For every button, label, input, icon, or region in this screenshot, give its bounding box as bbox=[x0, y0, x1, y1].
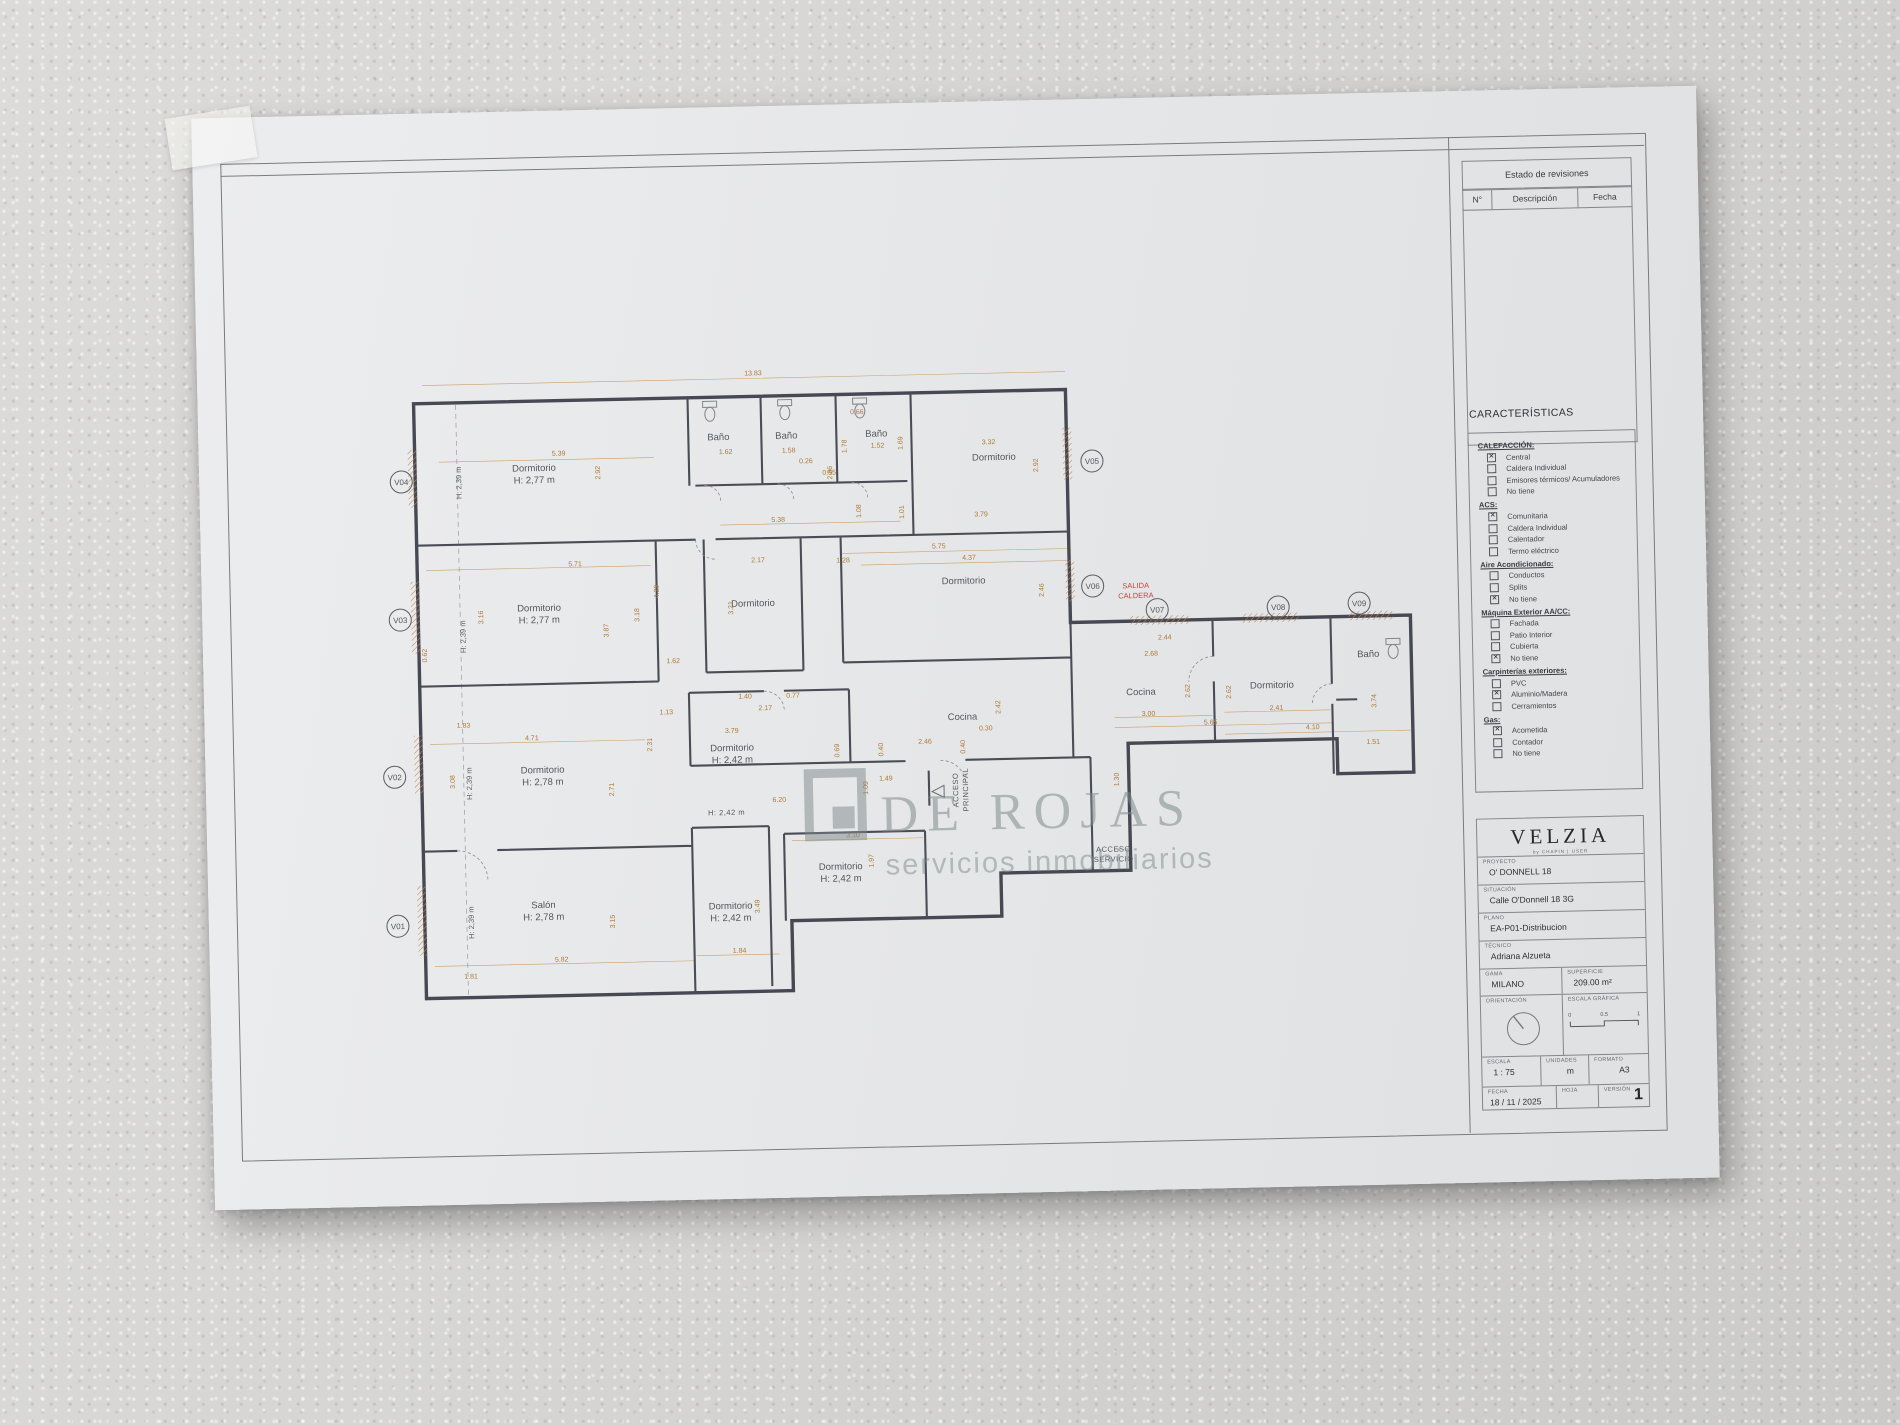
escala-value: 1 : 75 bbox=[1493, 1067, 1540, 1078]
dimension-label: 1.62 bbox=[666, 658, 680, 665]
checklist-item-label: Conductos bbox=[1508, 570, 1544, 580]
escala-grafica-label: ESCALA GRÁFICA bbox=[1568, 995, 1647, 1003]
checklist-item-label: Cubierta bbox=[1510, 642, 1539, 652]
dimension-label: 5.38 bbox=[771, 517, 785, 524]
room-label: Dormitorio bbox=[710, 742, 754, 754]
dimension-label: 1.62 bbox=[719, 449, 733, 456]
checklist-item: ✕Aluminio/Madera bbox=[1492, 687, 1640, 699]
room-height-label: H: 2,78 m bbox=[523, 912, 564, 924]
unchecked-checkbox-icon bbox=[1493, 750, 1502, 759]
dimension-label: 1.84 bbox=[733, 948, 747, 955]
checklist-item: PVC bbox=[1492, 676, 1640, 688]
checklist-item: No tiene bbox=[1493, 747, 1641, 759]
checklist-group-label: Máquina Exterior AA/CC: bbox=[1481, 605, 1638, 617]
window-marker-label: V09 bbox=[1352, 599, 1367, 608]
revision-col-num: N° bbox=[1463, 189, 1492, 210]
unidades-value: m bbox=[1552, 1066, 1588, 1077]
unchecked-checkbox-icon bbox=[1489, 547, 1498, 556]
dimension-label: 3.08 bbox=[450, 775, 457, 789]
dimension-label: 1.40 bbox=[738, 693, 752, 700]
dimension-label: 0.26 bbox=[799, 458, 813, 465]
dimension-label: 3.74 bbox=[1371, 694, 1378, 708]
room-height-label: H: 2,77 m bbox=[519, 615, 560, 627]
escala-row: ESCALA 1 : 75 UNIDADES m FORMATO A3 bbox=[1482, 1054, 1649, 1087]
escala-label: ESCALA bbox=[1487, 1059, 1540, 1066]
dimension-label: 4.71 bbox=[525, 735, 539, 742]
dimension-label: 5.71 bbox=[568, 561, 582, 568]
checklist-item: Emisores térmicos/ Acumuladores bbox=[1487, 473, 1635, 485]
dimension-label: 0.30 bbox=[979, 725, 993, 732]
gama-superficie-row: GAMA MILANO SUPERFICIE 209.00 m² bbox=[1480, 966, 1647, 997]
dimension-label: 4.29 bbox=[654, 585, 661, 599]
caracteristicas-checklist: CALEFACCIÓN:✕CentralCaldera IndividualEm… bbox=[1467, 429, 1643, 793]
dimension-label: 2.71 bbox=[609, 783, 616, 797]
dimension-label: 6.20 bbox=[772, 797, 786, 804]
room-label: Dormitorio bbox=[819, 861, 863, 873]
unchecked-checkbox-icon bbox=[1491, 631, 1500, 640]
dimension-label: 3.32 bbox=[982, 439, 996, 446]
title-block-field: TÉCNICOAdriana Alzueta bbox=[1480, 938, 1647, 970]
checklist-item-label: Emisores térmicos/ Acumuladores bbox=[1506, 473, 1620, 484]
dimension-label: 3.49 bbox=[754, 899, 761, 913]
window-height-label: H: 2,39 m bbox=[464, 767, 474, 800]
dimension-label: 1.13 bbox=[659, 709, 673, 716]
dimension-label: 1.30 bbox=[1114, 773, 1121, 787]
window-marker-label: V01 bbox=[391, 922, 406, 931]
checklist-item-label: Caldera Individual bbox=[1506, 463, 1566, 473]
window-height-label: H: 2,39 m bbox=[454, 466, 464, 499]
field-value: Adriana Alzueta bbox=[1491, 948, 1646, 961]
superficie-label: SUPERFICIE bbox=[1567, 968, 1646, 976]
dimension-label: 2.46 bbox=[1039, 583, 1046, 597]
room-label: Cocina bbox=[948, 712, 979, 724]
dimension-label: 4.37 bbox=[962, 555, 976, 562]
fecha-value: 18 / 11 / 2025 bbox=[1490, 1096, 1556, 1107]
checklist-item-label: Central bbox=[1506, 452, 1530, 462]
title-block-field: PROYECTOO' DONNELL 18 bbox=[1478, 854, 1645, 886]
dimension-label: 2.46 bbox=[918, 739, 932, 746]
unchecked-checkbox-icon bbox=[1492, 679, 1501, 688]
orientacion-row: ORIENTACIÓN ESCALA GRÁFICA 00.51 bbox=[1481, 993, 1648, 1058]
superficie-value: 209.00 m² bbox=[1573, 976, 1646, 988]
room-height-label: H: 2,77 m bbox=[514, 475, 555, 487]
unchecked-checkbox-icon bbox=[1487, 476, 1496, 485]
unchecked-checkbox-icon bbox=[1493, 738, 1502, 747]
window-marker-label: V05 bbox=[1085, 457, 1100, 466]
dimension-label: 2.31 bbox=[647, 738, 654, 752]
checklist-item: ✕No tiene bbox=[1491, 651, 1639, 663]
checklist-group-label: Carpinterías exteriores: bbox=[1483, 664, 1640, 676]
checklist-item: Cubierta bbox=[1491, 639, 1639, 651]
checked-checkbox-icon: ✕ bbox=[1488, 512, 1497, 521]
checklist-item: Termo eléctrico bbox=[1489, 544, 1637, 556]
dimension-label: 1.09 bbox=[863, 781, 870, 795]
dimension-label: 2.92 bbox=[1033, 458, 1040, 472]
fecha-row: FECHA 18 / 11 / 2025 HOJA VERSIÓN 1 bbox=[1483, 1084, 1649, 1109]
entrance-arrow-icon bbox=[932, 785, 944, 797]
caracteristicas-title: CARACTERÍSTICAS bbox=[1469, 406, 1574, 420]
dimension-label: 1.97 bbox=[868, 854, 875, 868]
checklist-item-label: Termo eléctrico bbox=[1508, 546, 1559, 556]
room-label: Dormitorio bbox=[517, 603, 561, 615]
window-marker-label: V07 bbox=[1150, 605, 1165, 614]
title-block-field: SITUACIÓNCalle O'Donnell 18 3G bbox=[1478, 882, 1645, 914]
dimension-label: 2.17 bbox=[751, 557, 765, 564]
dimension-label: 3.87 bbox=[603, 624, 610, 638]
room-height-label: H: 2,42 m bbox=[820, 873, 861, 885]
dimension-label: 3.21 bbox=[728, 601, 735, 615]
dimension-label: 3.79 bbox=[974, 511, 988, 518]
window-marker-label: V08 bbox=[1271, 603, 1286, 612]
room-height-label: H: 2,78 m bbox=[522, 777, 563, 789]
dimension-label: 13.83 bbox=[744, 370, 762, 377]
dimension-label: 1.58 bbox=[782, 447, 796, 454]
hoja-label: HOJA bbox=[1562, 1087, 1598, 1094]
checked-checkbox-icon: ✕ bbox=[1487, 453, 1496, 462]
dimension-label: 2.62 bbox=[1185, 684, 1192, 698]
checklist-item-label: No tiene bbox=[1510, 653, 1538, 663]
dimension-label: 2.92 bbox=[595, 466, 602, 480]
brand-block: VELZIA by CHAPIN | USER bbox=[1477, 816, 1644, 857]
unchecked-checkbox-icon bbox=[1487, 464, 1496, 473]
checklist-item-label: Patio Interior bbox=[1510, 630, 1553, 640]
annotation-label: ACCESO bbox=[1096, 844, 1131, 854]
checklist-item: Caldera Individual bbox=[1488, 521, 1636, 533]
dimension-label: 1.78 bbox=[841, 439, 848, 453]
room-label: Baño bbox=[707, 432, 729, 443]
room-label: Cocina bbox=[1126, 687, 1157, 699]
room-label: Baño bbox=[865, 428, 887, 439]
window-marker-label: V03 bbox=[393, 616, 408, 625]
checklist-item: ✕Comunitaria bbox=[1488, 509, 1636, 521]
checklist-group-label: CALEFACCIÓN: bbox=[1478, 438, 1635, 450]
annotation-label: PRINCIPAL bbox=[961, 768, 971, 812]
unchecked-checkbox-icon bbox=[1488, 524, 1497, 533]
dimension-label: 0.62 bbox=[422, 649, 429, 663]
blueprint-paper: DormitorioH: 2,77 mBañoBañoBañoDormitori… bbox=[191, 86, 1719, 1211]
dimension-label: 3.15 bbox=[610, 915, 617, 929]
dimension-label: 0.40 bbox=[878, 743, 885, 757]
checklist-item: ✕Acometida bbox=[1493, 723, 1641, 735]
room-label: Dormitorio bbox=[731, 598, 775, 610]
formato-label: FORMATO bbox=[1594, 1056, 1648, 1063]
checklist-item-label: Acometida bbox=[1512, 725, 1548, 735]
checklist-item: No tiene bbox=[1488, 484, 1636, 496]
dimension-label: 2.86 bbox=[827, 466, 834, 480]
room-height-label: H: 2,42 m bbox=[712, 754, 753, 766]
room-label: Dormitorio bbox=[512, 463, 556, 475]
checklist-item: ✕No tiene bbox=[1490, 592, 1638, 604]
unchecked-checkbox-icon bbox=[1489, 571, 1498, 580]
dimension-label: 2.42 bbox=[995, 700, 1002, 714]
checklist-item: Cerramientos bbox=[1492, 699, 1640, 711]
checklist-item-label: Aluminio/Madera bbox=[1511, 689, 1567, 699]
annotation-label: ACCESO bbox=[951, 773, 961, 808]
velzia-title-block: VELZIA by CHAPIN | USER PROYECTOO' DONNE… bbox=[1476, 815, 1650, 1111]
checklist-item: Calentador bbox=[1489, 532, 1637, 544]
dimension-label: 5.39 bbox=[552, 450, 566, 457]
graphic-scale-bar: 00.51 bbox=[1568, 1012, 1640, 1032]
dimension-label: 1.83 bbox=[457, 723, 471, 730]
dimension-label: 5.75 bbox=[932, 543, 946, 550]
checklist-item-label: Comunitaria bbox=[1507, 511, 1548, 521]
checklist-item-label: Caldera Individual bbox=[1507, 522, 1567, 532]
room-label: Baño bbox=[775, 430, 797, 441]
field-value: O' DONNELL 18 bbox=[1489, 864, 1644, 877]
title-block-column: Estado de revisiones N° Descripción Fech… bbox=[1448, 133, 1667, 1133]
dimension-label: 3.00 bbox=[1142, 711, 1156, 718]
dimension-label: 2.44 bbox=[1158, 634, 1172, 641]
unchecked-checkbox-icon bbox=[1491, 642, 1500, 651]
checklist-item: ✕Central bbox=[1487, 450, 1635, 462]
checklist-item-label: Cerramientos bbox=[1511, 701, 1556, 711]
dimension-label: 0.40 bbox=[960, 740, 967, 754]
dimension-label: 1.81 bbox=[464, 973, 478, 980]
dimension-label: 3.16 bbox=[478, 610, 485, 624]
checked-checkbox-icon: ✕ bbox=[1490, 595, 1499, 604]
checklist-item-label: No tiene bbox=[1509, 594, 1537, 604]
checklist-item: Patio Interior bbox=[1491, 628, 1639, 640]
dimension-label: 1.49 bbox=[879, 775, 893, 782]
dimension-label: 3.10 bbox=[846, 832, 860, 839]
brand-name: VELZIA bbox=[1477, 822, 1644, 851]
checklist-group-label: Aire Acondicionado: bbox=[1480, 557, 1637, 569]
room-label: Baño bbox=[1357, 649, 1379, 660]
dimension-label: 3.18 bbox=[634, 608, 641, 622]
gama-label: GAMA bbox=[1485, 970, 1561, 978]
bathroom-fixtures bbox=[703, 386, 1401, 673]
room-label: Dormitorio bbox=[709, 900, 753, 912]
room-label: Dormitorio bbox=[521, 765, 565, 777]
formato-value: A3 bbox=[1600, 1064, 1648, 1075]
window-marker-label: V04 bbox=[394, 478, 409, 487]
dimension-label: 1.52 bbox=[871, 443, 885, 450]
window-marker-label: V06 bbox=[1085, 582, 1100, 591]
checklist-item-label: Calentador bbox=[1508, 534, 1545, 544]
checked-checkbox-icon: ✕ bbox=[1492, 690, 1501, 699]
floor-plan-labels: DormitorioH: 2,77 mBañoBañoBañoDormitori… bbox=[375, 357, 1386, 983]
checklist-group-label: Gas: bbox=[1484, 712, 1641, 724]
dimension-label: 1.28 bbox=[836, 557, 850, 564]
dimension-label: 5.82 bbox=[555, 957, 569, 964]
checklist-item-label: Fachada bbox=[1509, 618, 1538, 628]
dimension-label: 5.65 bbox=[1204, 719, 1218, 726]
dimension-label: 2.68 bbox=[1144, 651, 1158, 658]
room-label: Dormitorio bbox=[1250, 680, 1294, 692]
checklist-item: Contador bbox=[1493, 735, 1641, 747]
unchecked-checkbox-icon bbox=[1492, 702, 1501, 711]
window-marker-label: V02 bbox=[387, 773, 402, 782]
room-label: Dormitorio bbox=[942, 575, 986, 587]
scale-bar-icon bbox=[1568, 1018, 1640, 1030]
room-label: Dormitorio bbox=[972, 452, 1016, 464]
unchecked-checkbox-icon bbox=[1490, 583, 1499, 592]
dimension-label: 3.79 bbox=[725, 728, 739, 735]
checklist-group-label: ACS: bbox=[1479, 497, 1636, 509]
checked-checkbox-icon: ✕ bbox=[1493, 726, 1502, 735]
dimension-label: 1.08 bbox=[856, 504, 863, 518]
checklist-item: Caldera Individual bbox=[1487, 461, 1635, 473]
unchecked-checkbox-icon bbox=[1488, 488, 1497, 497]
checklist-item-label: Splits bbox=[1509, 582, 1528, 591]
compass-icon bbox=[1500, 1007, 1547, 1052]
unchecked-checkbox-icon bbox=[1491, 619, 1500, 628]
salida-caldera-label: SALIDA bbox=[1122, 581, 1149, 591]
unidades-label: UNIDADES bbox=[1546, 1058, 1588, 1065]
dimension-label: 1.51 bbox=[1366, 739, 1380, 746]
annotation-label: H: 2,42 m bbox=[708, 808, 745, 818]
room-label: Salón bbox=[531, 900, 556, 912]
orientacion-label: ORIENTACIÓN bbox=[1486, 997, 1562, 1005]
checklist-item-label: No tiene bbox=[1507, 487, 1535, 497]
checked-checkbox-icon: ✕ bbox=[1491, 654, 1500, 663]
checklist-item-label: Contador bbox=[1512, 737, 1543, 747]
checklist-item-label: No tiene bbox=[1512, 749, 1540, 759]
dimension-label: 1.01 bbox=[899, 505, 906, 519]
checklist-item: Splits bbox=[1490, 580, 1638, 592]
title-block-field: PLANOEA-P01-Distribucion bbox=[1479, 910, 1646, 942]
fecha-label: FECHA bbox=[1488, 1088, 1556, 1095]
dimension-label: 0.69 bbox=[834, 744, 841, 758]
field-value: EA-P01-Distribucion bbox=[1490, 920, 1645, 933]
field-value: Calle O'Donnell 18 3G bbox=[1490, 892, 1645, 905]
dimension-label: 2.17 bbox=[758, 705, 772, 712]
wall-background: DormitorioH: 2,77 mBañoBañoBañoDormitori… bbox=[0, 0, 1900, 1425]
unchecked-checkbox-icon bbox=[1489, 535, 1498, 544]
version-value: 1 bbox=[1634, 1086, 1643, 1104]
dimension-label: 0.66 bbox=[850, 409, 864, 416]
dimension-label: 2.41 bbox=[1270, 705, 1284, 712]
dimension-label: 1.69 bbox=[897, 436, 904, 450]
checklist-item-label: PVC bbox=[1511, 678, 1527, 687]
window-height-label: H: 2,39 m bbox=[467, 906, 477, 939]
checklist-item: Conductos bbox=[1489, 568, 1637, 580]
revision-col-date: Fecha bbox=[1578, 186, 1631, 207]
gama-value: MILANO bbox=[1491, 978, 1561, 990]
salida-caldera-label: CALDERA bbox=[1118, 591, 1154, 601]
dimension-label: 2.62 bbox=[1226, 685, 1233, 699]
room-height-label: H: 2,42 m bbox=[710, 913, 751, 925]
dimension-label: 0.77 bbox=[786, 692, 800, 699]
door-arcs bbox=[449, 472, 1335, 881]
window-height-label: H: 2,39 m bbox=[458, 620, 468, 653]
checklist-item: Fachada bbox=[1491, 616, 1639, 628]
annotation-label: SERVICIO bbox=[1094, 854, 1134, 864]
dimension-label: 4.10 bbox=[1306, 724, 1320, 731]
